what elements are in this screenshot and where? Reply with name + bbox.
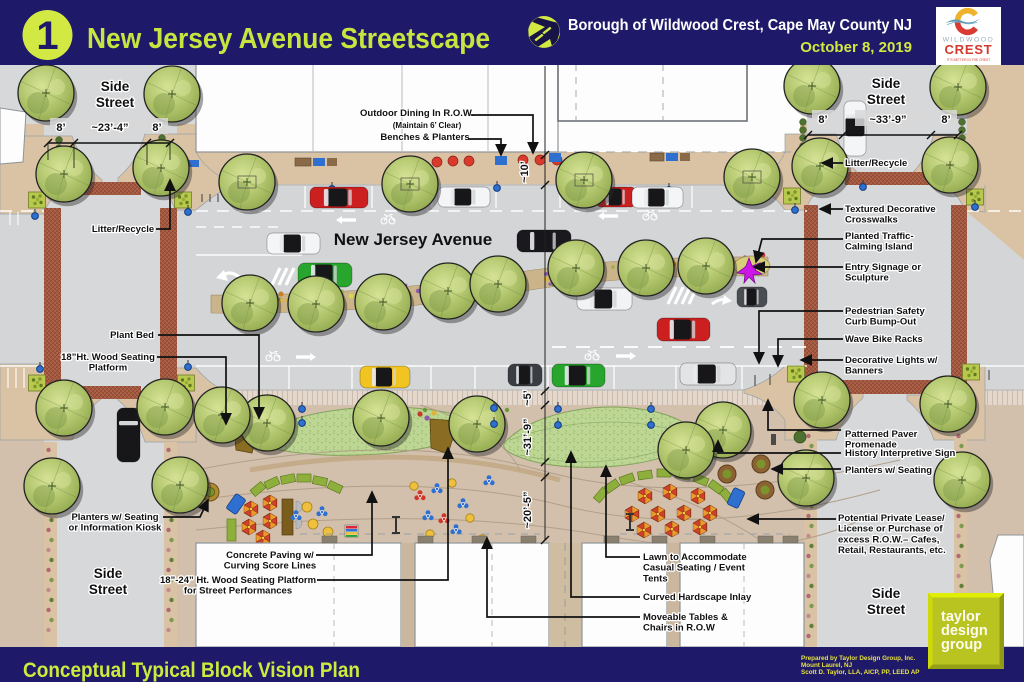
svg-text:Conceptual Typical Block Visio: Conceptual Typical Block Vision Plan (23, 659, 360, 682)
svg-text:Plant Bed: Plant Bed (110, 330, 154, 341)
svg-text:1: 1 (36, 14, 58, 58)
svg-text:Potential Private Lease/Licens: Potential Private Lease/License or Purch… (838, 513, 946, 556)
svg-text:Borough of Wildwood Crest, Cap: Borough of Wildwood Crest, Cape May Coun… (568, 17, 912, 34)
svg-text:8’: 8’ (152, 122, 161, 134)
svg-text:~33’-9”: ~33’-9” (870, 114, 907, 126)
svg-text:Pedestrian SafetyCurb Bump-Out: Pedestrian SafetyCurb Bump-Out (845, 306, 925, 328)
svg-text:Benches & Planters: Benches & Planters (380, 132, 469, 143)
svg-text:History Interpretive Sign: History Interpretive Sign (845, 448, 956, 459)
svg-text:Litter/Recycle: Litter/Recycle (845, 158, 907, 169)
svg-text:Mount Laurel, NJ: Mount Laurel, NJ (801, 662, 853, 669)
svg-text:IT’S BETTER IN THE CREST: IT’S BETTER IN THE CREST (947, 58, 991, 62)
svg-text:Prepared by Taylor Design Grou: Prepared by Taylor Design Group, Inc. (801, 655, 916, 662)
svg-text:Scott D. Taylor, LLA, AICP, PP: Scott D. Taylor, LLA, AICP, PP, LEED AP (801, 669, 920, 676)
svg-text:group: group (941, 637, 982, 653)
svg-text:~31’-9”: ~31’-9” (522, 419, 534, 456)
svg-text:Outdoor Dining In R.O.W.: Outdoor Dining In R.O.W. (360, 108, 474, 119)
svg-text:Planted Traffic-Calming Island: Planted Traffic-Calming Island (845, 231, 914, 253)
svg-text:(Maintain 6’ Clear): (Maintain 6’ Clear) (393, 121, 462, 130)
svg-text:October 8, 2019: October 8, 2019 (800, 39, 912, 56)
svg-text:SideStreet: SideStreet (867, 586, 906, 617)
svg-text:New Jersey Avenue Streetscape: New Jersey Avenue Streetscape (87, 23, 490, 55)
svg-text:Wave Bike Racks: Wave Bike Racks (845, 334, 923, 345)
svg-text:8’: 8’ (818, 114, 827, 126)
svg-text:~5’: ~5’ (522, 390, 534, 406)
svg-text:New Jersey Avenue: New Jersey Avenue (334, 230, 492, 249)
svg-text:8’: 8’ (56, 122, 65, 134)
svg-text:Litter/Recycle: Litter/Recycle (92, 224, 154, 235)
svg-text:Curved Hardscape Inlay: Curved Hardscape Inlay (643, 592, 752, 603)
svg-text:8’: 8’ (941, 114, 950, 126)
svg-text:Planters w/ Seatingor Informat: Planters w/ Seatingor Information Kiosk (69, 512, 163, 534)
svg-text:SideStreet: SideStreet (89, 566, 128, 597)
svg-text:SideStreet: SideStreet (867, 76, 906, 107)
svg-text:CREST: CREST (944, 42, 992, 57)
svg-text:SideStreet: SideStreet (96, 79, 135, 110)
svg-text:Planters w/ Seating: Planters w/ Seating (845, 465, 932, 476)
svg-text:~23’-4”: ~23’-4” (92, 122, 129, 134)
svg-text:Concrete Paving w/Curving Scor: Concrete Paving w/Curving Score Lines (224, 550, 316, 572)
svg-text:~20’-5”: ~20’-5” (522, 492, 534, 529)
svg-text:~10’: ~10’ (519, 161, 531, 183)
